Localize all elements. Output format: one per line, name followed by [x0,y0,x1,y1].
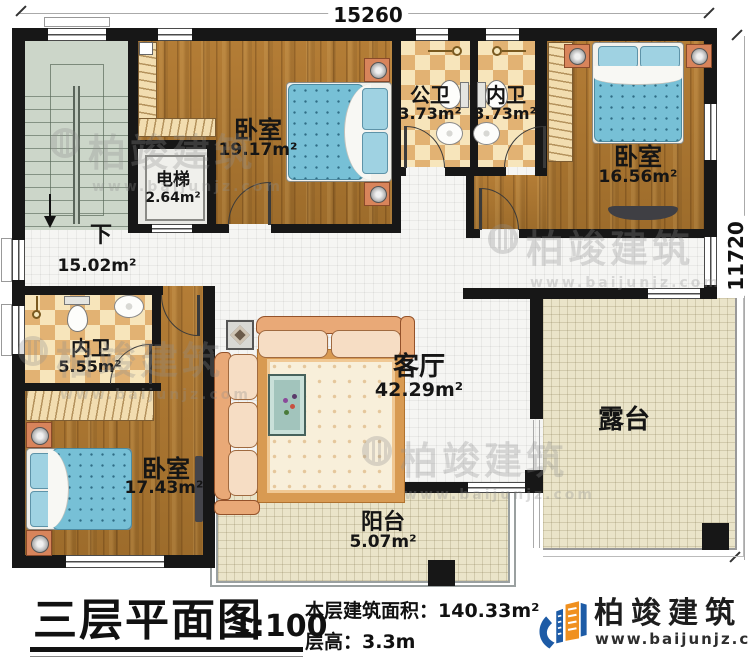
pillow [598,46,638,68]
pillow [640,46,680,68]
sink [436,122,463,145]
room-area-bedroom-right: 16.56m² [599,169,678,186]
coffee-table [268,374,306,436]
door-leaf [543,126,546,168]
wardrobe [138,118,216,137]
wall-segment [159,286,163,295]
window [704,237,717,285]
wall-segment [12,28,25,568]
room-area-bedroom-top: 19.17m² [219,142,298,159]
window-sill [1,304,12,356]
plan-title: 三层平面图 [33,599,263,643]
lamp [691,48,708,65]
wall-segment [543,288,648,299]
sink [114,295,144,318]
elevator-door [152,224,192,233]
bed-sheet [594,66,682,85]
wall-segment [463,288,543,299]
wall-segment [22,383,161,391]
toilet [67,305,88,332]
shower-head-icon [492,46,502,56]
window [66,555,164,568]
room-label-inner-bath-left: 内卫 [71,338,111,358]
floor-height-text: 层高：3.3m [305,633,415,652]
sofa-armrest [214,500,260,515]
shaft-hatch [139,42,153,55]
shower-head-icon [452,46,462,56]
room-label-inner-bath-top: 内卫 [486,85,526,105]
wall-segment [474,229,480,238]
pillow [362,88,388,130]
floor-area-text: 本层建筑面积：140.33m² [305,602,539,621]
dimension-line-right [744,36,745,560]
dimension-tick [15,5,26,16]
wall-segment [128,140,216,149]
door-leaf [479,188,482,230]
sofa-cushion [228,354,258,400]
door-leaf [268,182,271,225]
window [468,482,525,493]
brand-name: 柏竣建筑 [594,599,742,629]
wall-segment [700,288,704,299]
room-label-living: 客厅 [393,354,445,380]
room-label-balcony: 阳台 [361,512,405,534]
sofa-cushion [258,330,328,358]
wall-pillar [702,523,729,550]
room-label-public-bath: 公卫 [410,85,450,105]
sofa-cushion [228,450,258,496]
sink [473,122,500,145]
wall-segment [400,167,406,176]
window [416,28,448,41]
flower-decor [292,394,297,399]
door-leaf [149,344,152,384]
flower-decor [283,398,288,403]
room-label-bedroom-right: 卧室 [614,145,662,169]
lamp [370,186,387,203]
room-area-elevator: 2.64m² [145,191,200,205]
room-area-inner-bath-left: 5.55m² [58,359,121,375]
wall-segment [445,167,506,176]
window [704,104,717,160]
wall-segment [128,224,152,233]
sofa-cushion [331,330,401,358]
room-label-elevator: 电梯 [156,172,190,189]
wall-segment [392,40,401,233]
lamp [31,535,49,553]
shower-arm [428,50,452,52]
room-area-living: 42.29m² [375,381,463,400]
wall-segment [519,229,704,238]
window [648,288,700,299]
window [486,28,519,41]
wall-segment [530,293,543,419]
lamp [370,62,387,79]
room-area-balcony: 5.07m² [349,534,416,551]
pillow [362,132,388,174]
room-area-inner-bath-top: 3.73m² [473,106,536,122]
stair-handrail [73,86,80,224]
dimension-top-value: 15260 [328,5,408,25]
wall-segment [12,28,717,41]
brand-logo-icon [536,594,590,654]
dimension-right-value: 11720 [726,216,746,296]
flower-decor [290,404,295,409]
window [48,28,106,41]
corridor-area-label: 15.02m² [58,258,137,275]
stairs-down-label: 下 [90,225,112,247]
dimension-tick [731,29,742,40]
brand-website: www.baijunjz.com [595,632,750,647]
wall-segment [466,176,474,238]
wall-segment [152,286,161,346]
window [12,306,25,354]
door-leaf [197,295,200,336]
wall-pillar [525,470,543,493]
lamp [569,48,586,65]
stair-arrow-head [44,216,56,228]
window [12,240,25,280]
wall-pillar [428,560,455,586]
wall-segment [128,40,138,233]
toilet [64,296,90,305]
door-leaf [404,126,407,168]
sofa-cushion [228,402,258,448]
title-underline-thin [30,656,303,657]
room-area-bedroom-bottom: 17.43m² [125,480,204,497]
wall-segment [207,140,216,233]
room-area-public-bath: 3.73m² [398,106,461,122]
lamp [31,427,49,445]
shower-knob-icon [32,310,41,319]
flower-decor [284,410,289,415]
room-label-terrace: 露台 [598,407,650,433]
title-underline-thick [30,647,303,652]
shower-arm [502,50,526,52]
window-sill [44,17,110,27]
window-sill [1,238,12,282]
stair-direction-arrow [49,194,51,218]
wall-segment [271,224,400,233]
wall-segment [22,286,159,295]
room-label-bedroom-top: 卧室 [234,118,282,142]
wall-segment [192,224,229,233]
window [158,28,192,41]
wardrobe [26,390,154,421]
